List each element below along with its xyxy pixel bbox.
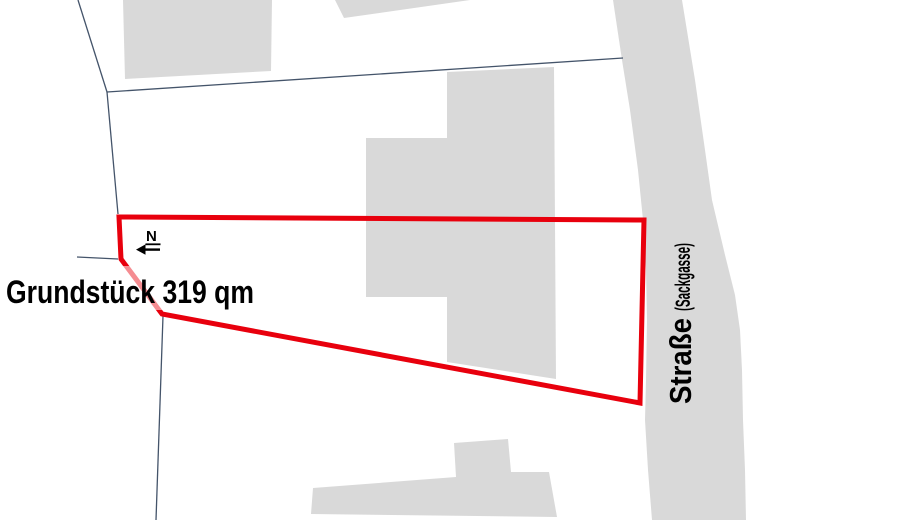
building-top-left <box>123 0 272 79</box>
street-name-suffix: (Sackgasse) <box>672 243 695 311</box>
parcel-boundary-line <box>156 316 163 520</box>
parcel-boundary-line <box>78 0 107 92</box>
building-bottom <box>311 439 557 517</box>
map-canvas: Grundstück 319 qm N Straße (Sackgasse) <box>0 0 924 520</box>
parcel-boundary-line <box>77 257 118 259</box>
building-top-middle <box>335 0 470 18</box>
street-name: Straße <box>663 318 698 404</box>
parcel-boundary-line <box>107 92 118 214</box>
site-plan: Grundstück 319 qm N Straße (Sackgasse) <box>0 0 924 520</box>
north-underline <box>146 243 161 245</box>
building-center <box>366 67 556 379</box>
north-indicator: N <box>136 228 161 255</box>
layer-buildings <box>123 0 557 517</box>
north-label: N <box>146 228 157 245</box>
plot-area-label: Grundstück 319 qm <box>6 274 254 310</box>
north-arrow-head <box>136 244 146 254</box>
